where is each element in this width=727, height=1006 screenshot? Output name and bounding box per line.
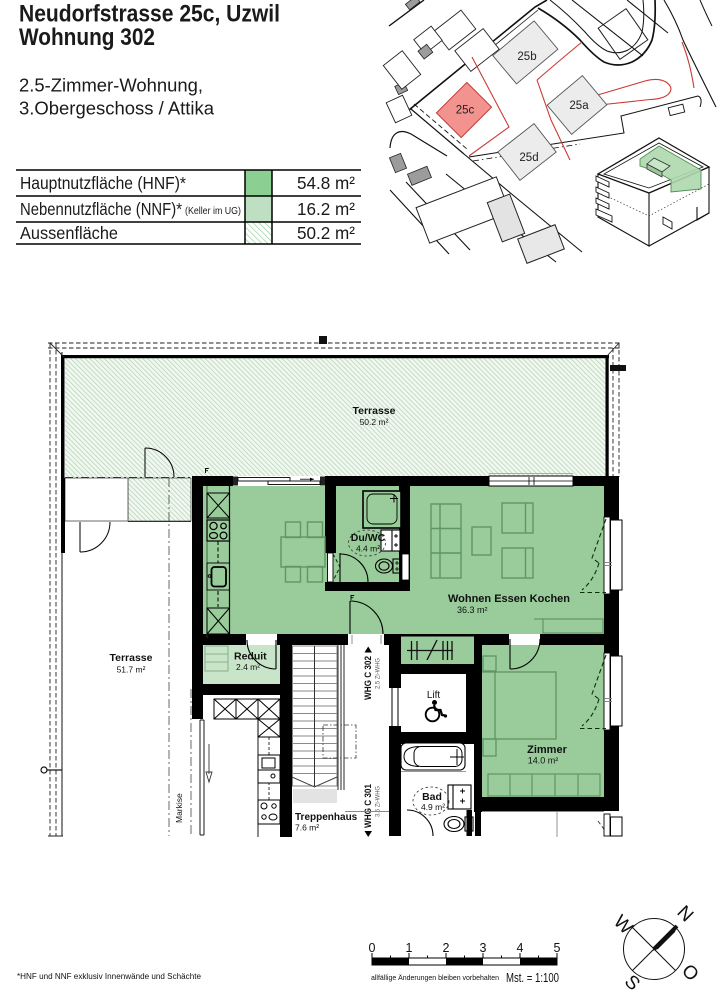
svg-text:50.2 m²: 50.2 m²: [297, 223, 355, 243]
svg-text:1: 1: [406, 941, 413, 955]
svg-text:O: O: [677, 960, 702, 985]
svg-text:3.Obergeschoss / Attika: 3.Obergeschoss / Attika: [19, 99, 215, 119]
svg-text:N: N: [673, 902, 698, 927]
svg-text:Reduit: Reduit: [234, 651, 267, 663]
svg-text:50.2 m²: 50.2 m²: [360, 417, 389, 427]
svg-text:Hauptnutzfläche (HNF)*: Hauptnutzfläche (HNF)*: [20, 173, 186, 193]
svg-text:2.5-Zimmer-Wohnung,: 2.5-Zimmer-Wohnung,: [19, 76, 203, 96]
svg-text:allfällige Änderungen bleiben: allfällige Änderungen bleiben vorbehalte…: [371, 973, 499, 982]
svg-text:14.0 m²: 14.0 m²: [528, 756, 559, 766]
svg-text:Terrasse: Terrasse: [352, 405, 395, 417]
svg-text:25a: 25a: [569, 100, 589, 112]
svg-text:5: 5: [554, 941, 561, 955]
svg-text:Terrasse: Terrasse: [109, 652, 152, 664]
svg-text:Wohnen Essen Kochen: Wohnen Essen Kochen: [448, 593, 570, 605]
svg-text:2.5 Zi-WHG: 2.5 Zi-WHG: [375, 658, 382, 689]
svg-text:54.8 m²: 54.8 m²: [297, 173, 355, 193]
svg-text:16.2 m²: 16.2 m²: [297, 199, 355, 219]
svg-text:Wohnung 302: Wohnung 302: [19, 24, 155, 51]
svg-text:0: 0: [369, 941, 376, 955]
svg-text:Nebennutzfläche (NNF)*(Keller: Nebennutzfläche (NNF)*(Keller im UG): [20, 199, 241, 219]
svg-text:4.4 m²: 4.4 m²: [356, 544, 380, 554]
svg-text:Lift: Lift: [427, 690, 441, 701]
svg-text:*HNF und NNF exklusiv Innenwän: *HNF und NNF exklusiv Innenwände und Sch…: [17, 972, 202, 981]
svg-text:Zimmer: Zimmer: [527, 744, 567, 756]
svg-text:S: S: [620, 971, 644, 995]
svg-text:Markise: Markise: [174, 793, 184, 823]
svg-text:4.9 m²: 4.9 m²: [421, 802, 445, 812]
svg-text:WHG C 302: WHG C 302: [363, 656, 374, 700]
svg-text:36.3 m²: 36.3 m²: [457, 605, 488, 615]
svg-text:W: W: [609, 911, 637, 939]
svg-text:2: 2: [443, 941, 450, 955]
svg-text:4: 4: [517, 941, 524, 955]
svg-text:7.6 m²: 7.6 m²: [295, 823, 319, 833]
svg-text:3.5 Zi-WHG: 3.5 Zi-WHG: [375, 786, 382, 817]
svg-text:25b: 25b: [517, 51, 536, 63]
svg-text:2.4 m²: 2.4 m²: [236, 662, 260, 672]
svg-text:25c: 25c: [456, 105, 475, 117]
svg-text:Treppenhaus: Treppenhaus: [295, 812, 358, 823]
svg-text:Aussenfläche: Aussenfläche: [20, 223, 118, 243]
svg-text:3: 3: [480, 941, 487, 955]
svg-text:25d: 25d: [519, 152, 538, 164]
svg-text:Mst. = 1:100: Mst. = 1:100: [506, 970, 559, 985]
svg-text:Du/WC: Du/WC: [351, 532, 386, 544]
svg-text:WHG C 301: WHG C 301: [363, 783, 374, 828]
svg-text:51.7 m²: 51.7 m²: [117, 665, 146, 675]
